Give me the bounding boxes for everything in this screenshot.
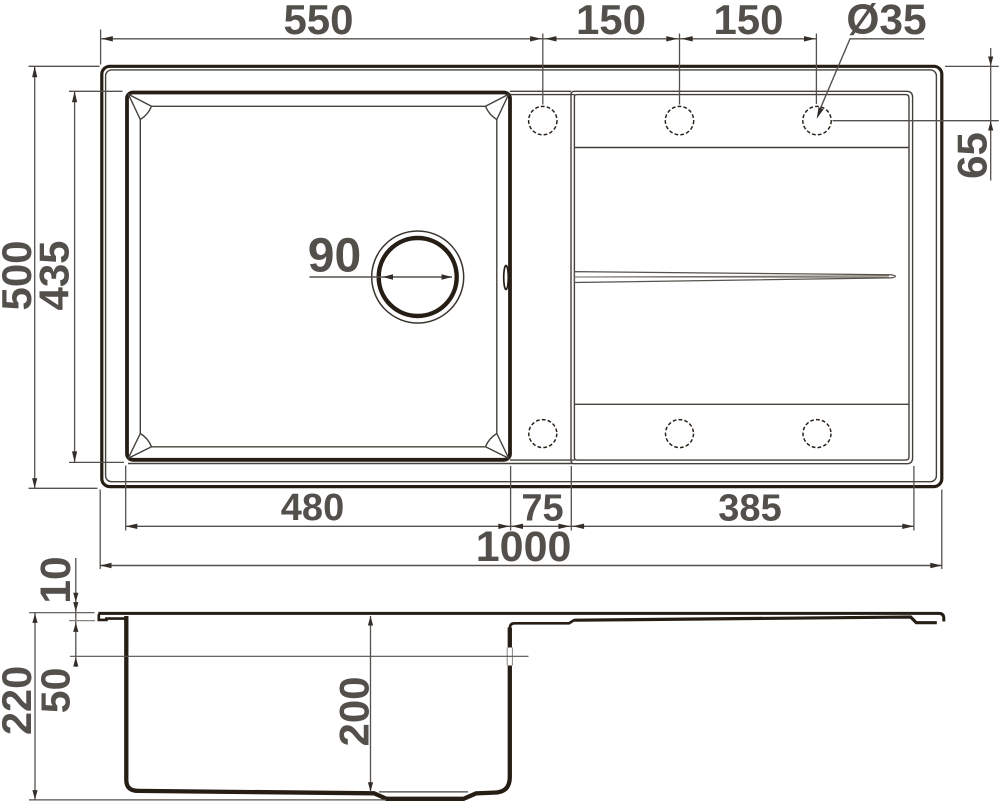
svg-text:435: 435 xyxy=(30,240,77,310)
svg-text:550: 550 xyxy=(283,0,353,43)
svg-text:Ø35: Ø35 xyxy=(846,0,926,44)
svg-text:200: 200 xyxy=(331,676,378,746)
svg-text:385: 385 xyxy=(718,488,781,530)
svg-text:480: 480 xyxy=(281,487,344,529)
svg-text:220: 220 xyxy=(0,666,40,735)
svg-text:150: 150 xyxy=(713,0,783,43)
svg-text:150: 150 xyxy=(576,0,646,43)
svg-text:10: 10 xyxy=(33,556,80,603)
svg-text:65: 65 xyxy=(949,132,996,179)
svg-text:1000: 1000 xyxy=(476,523,572,571)
svg-text:90: 90 xyxy=(308,230,361,283)
